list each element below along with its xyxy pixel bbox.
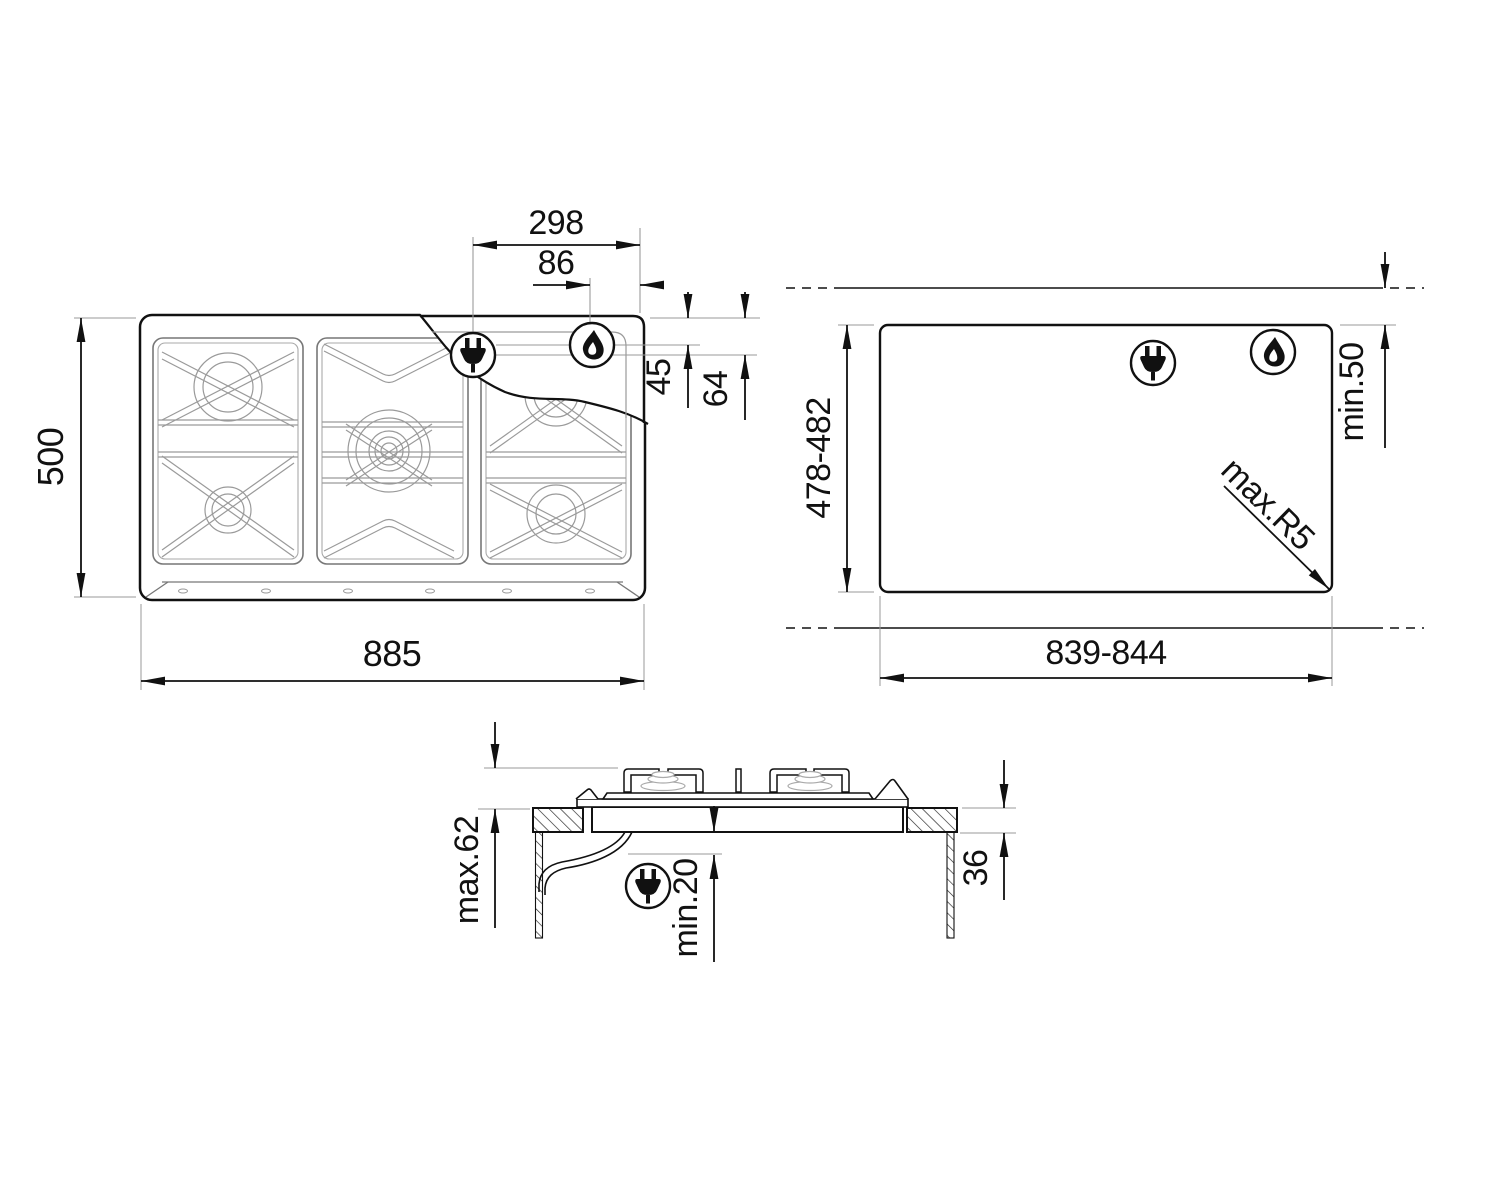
dim-plug-offset-y: 64 xyxy=(697,371,735,408)
dim-clearance-below: min.20 xyxy=(667,858,705,957)
dim-section-height: max.62 xyxy=(448,816,486,925)
power-plug-icon xyxy=(1131,341,1175,385)
installation-diagram: 500 885 298 86 45 64 xyxy=(0,0,1500,1200)
worktop-section-right xyxy=(907,808,957,938)
section-dimensions: max.62 min.20 36 xyxy=(448,722,1004,962)
drawing-canvas: 500 885 298 86 45 64 xyxy=(0,0,1500,1200)
gas-flame-icon xyxy=(570,323,614,367)
dim-flame-offset-y: 45 xyxy=(640,359,678,396)
cutout-view: 478-482 839-844 min.50 max.R5 xyxy=(786,252,1424,686)
dim-plan-width: 885 xyxy=(363,633,422,674)
dim-worktop-thickness: 36 xyxy=(957,850,995,887)
dim-flame-offset-x: 86 xyxy=(538,244,575,282)
section-view: max.62 min.20 36 xyxy=(448,722,1016,962)
dim-plan-depth: 500 xyxy=(30,428,71,487)
dim-cutout-width: 839-844 xyxy=(1045,634,1166,672)
dim-plug-offset-x: 298 xyxy=(528,204,583,242)
hob-body-section xyxy=(592,807,903,832)
left-rim xyxy=(576,789,598,799)
power-plug-icon xyxy=(451,333,495,377)
dim-cutout-depth: 478-482 xyxy=(800,397,838,518)
right-rim xyxy=(875,780,908,800)
gas-flame-icon xyxy=(1251,330,1295,374)
power-plug-icon xyxy=(626,864,670,908)
dim-rear-clearance: min.50 xyxy=(1333,342,1371,441)
supply-cable xyxy=(539,832,632,895)
worktop-section-left xyxy=(533,808,583,938)
plan-view: 500 885 298 86 45 64 xyxy=(30,204,760,690)
hob-flange xyxy=(577,799,908,807)
hob-top-slab xyxy=(603,793,873,799)
